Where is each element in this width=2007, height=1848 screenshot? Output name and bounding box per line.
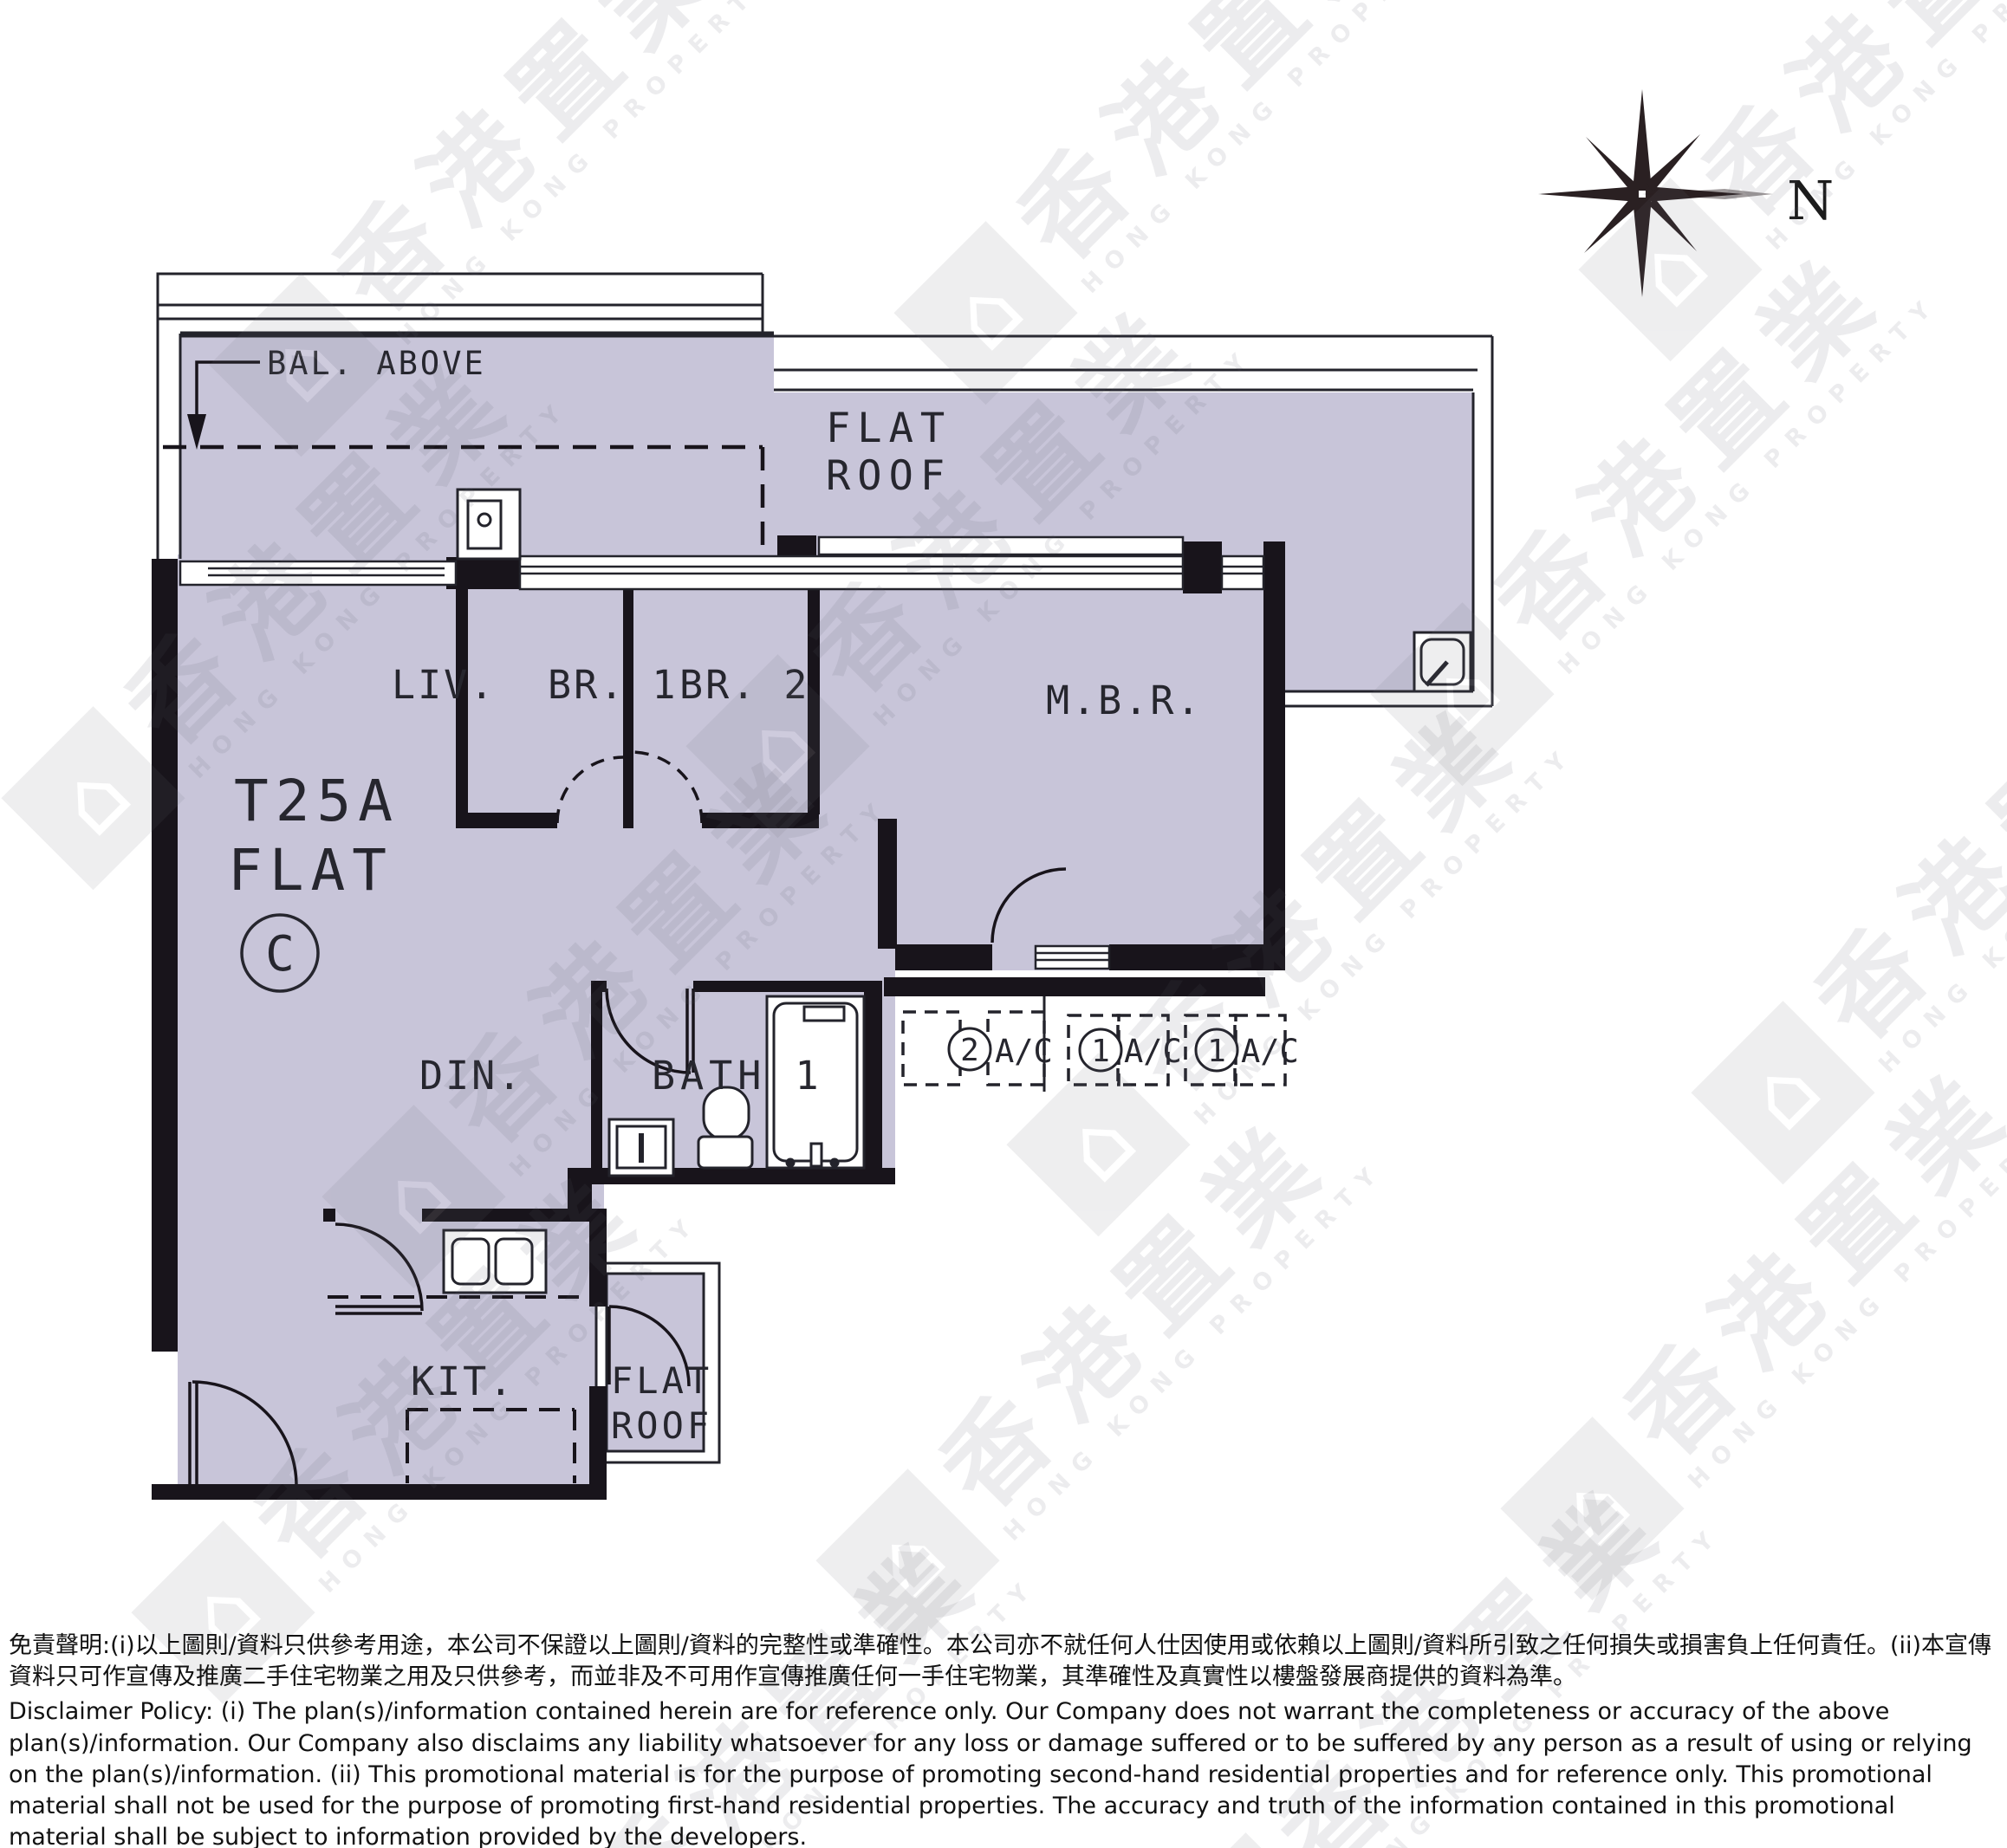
- bathtub-faucet: [811, 1144, 822, 1166]
- window-liv: [180, 561, 456, 585]
- flat-roof-small-label-2: ROOF: [611, 1404, 712, 1447]
- wall-bath-right: [864, 981, 882, 1184]
- roof-drain-inner: [1421, 639, 1464, 684]
- compass-star-icon: [1538, 89, 1773, 297]
- wall-br2-bottom: [702, 813, 819, 828]
- ac-number-1: 2: [960, 1033, 979, 1068]
- wall-ac-platform: [884, 977, 1265, 996]
- wall-band-chunk-3: [1183, 541, 1222, 593]
- floorplan-page: 2 A/C 1 A/C 1 A/C BAL. ABOVE FLAT ROOF L…: [0, 0, 2007, 1848]
- flat-roof-small-label-1: FLAT: [611, 1359, 712, 1402]
- window-parapet-strip: [819, 537, 1183, 554]
- kitchen-sink-basin1: [452, 1239, 489, 1284]
- mbr-label: M.B.R.: [1046, 678, 1203, 723]
- br2-label: BR. 2: [679, 662, 809, 708]
- bathtub-drain-dot: [787, 1159, 794, 1166]
- ac-platform: 2 A/C 1 A/C 1 A/C: [903, 996, 1299, 1092]
- wall-left: [152, 559, 178, 1352]
- flat-roof-top-label-1: FLAT: [826, 405, 952, 452]
- floorplan-drawing: 2 A/C 1 A/C 1 A/C BAL. ABOVE FLAT ROOF L…: [0, 0, 2007, 1848]
- tower-label: T25A: [234, 768, 399, 834]
- bathtub-drain-dot2: [831, 1159, 838, 1166]
- kit-label: KIT.: [411, 1358, 515, 1404]
- disclaimer-en: Disclaimer Policy: (i) The plan(s)/infor…: [9, 1696, 2000, 1848]
- toilet-tank: [698, 1137, 752, 1168]
- kitchen-sink-basin2: [496, 1239, 532, 1284]
- bath-label: BATH 1: [652, 1053, 824, 1099]
- ac-group-2: 1 A/C: [1068, 1015, 1182, 1085]
- br1-label: BR. 1: [548, 662, 678, 708]
- flat-word-label: FLAT: [228, 837, 393, 904]
- flat-letter: C: [265, 926, 295, 982]
- bathtub-controls: [804, 1007, 844, 1021]
- ac-label-2: A/C: [1124, 1033, 1182, 1070]
- wall-mbr-bottom-b: [1109, 944, 1285, 970]
- wall-mbr-bottom-a: [895, 944, 992, 970]
- bal-above-label: BAL. ABOVE: [267, 345, 486, 382]
- ac-group-1: 2 A/C: [903, 1012, 1053, 1085]
- wall-bath-top-b: [693, 981, 882, 992]
- wall-divider-foot: [623, 813, 633, 828]
- wall-bath-left: [591, 981, 602, 1184]
- wall-mbr-right: [1263, 541, 1285, 970]
- wall-kitchen-top-b: [422, 1209, 589, 1222]
- ac-number-2: 1: [1091, 1034, 1110, 1069]
- disclaimer-zh: 免責聲明:(i)以上圖則/資料只供參考用途，本公司不保證以上圖則/資料的完整性或…: [9, 1631, 2000, 1693]
- window-mbr-bottom: [1036, 946, 1109, 969]
- heater-valve-icon: [478, 514, 490, 526]
- flat-roof-top-label-2: ROOF: [826, 452, 952, 500]
- liv-label: LIV.: [392, 662, 496, 708]
- wall-br1-bottom: [456, 813, 557, 828]
- wall-bottom: [152, 1484, 607, 1500]
- wall-mbr-step: [878, 819, 897, 949]
- wall-bath-kitchen-junction: [568, 1168, 592, 1220]
- ac-label-1: A/C: [995, 1033, 1053, 1070]
- ac-group-3: 1 A/C: [1185, 1015, 1299, 1085]
- din-label: DIN.: [419, 1053, 523, 1099]
- north-compass: N: [1538, 89, 1834, 297]
- ac-number-3: 1: [1207, 1034, 1226, 1069]
- wall-kitchen-right-b: [589, 1386, 607, 1499]
- north-label: N: [1787, 169, 1834, 232]
- ac-label-3: A/C: [1241, 1033, 1299, 1070]
- wall-kitchen-top-a: [323, 1209, 335, 1222]
- wall-kitchen-right-a: [589, 1209, 607, 1307]
- disclaimer-block: 免責聲明:(i)以上圖則/資料只供參考用途，本公司不保證以上圖則/資料的完整性或…: [9, 1631, 2000, 1848]
- wall-band-chunk-1: [446, 557, 520, 589]
